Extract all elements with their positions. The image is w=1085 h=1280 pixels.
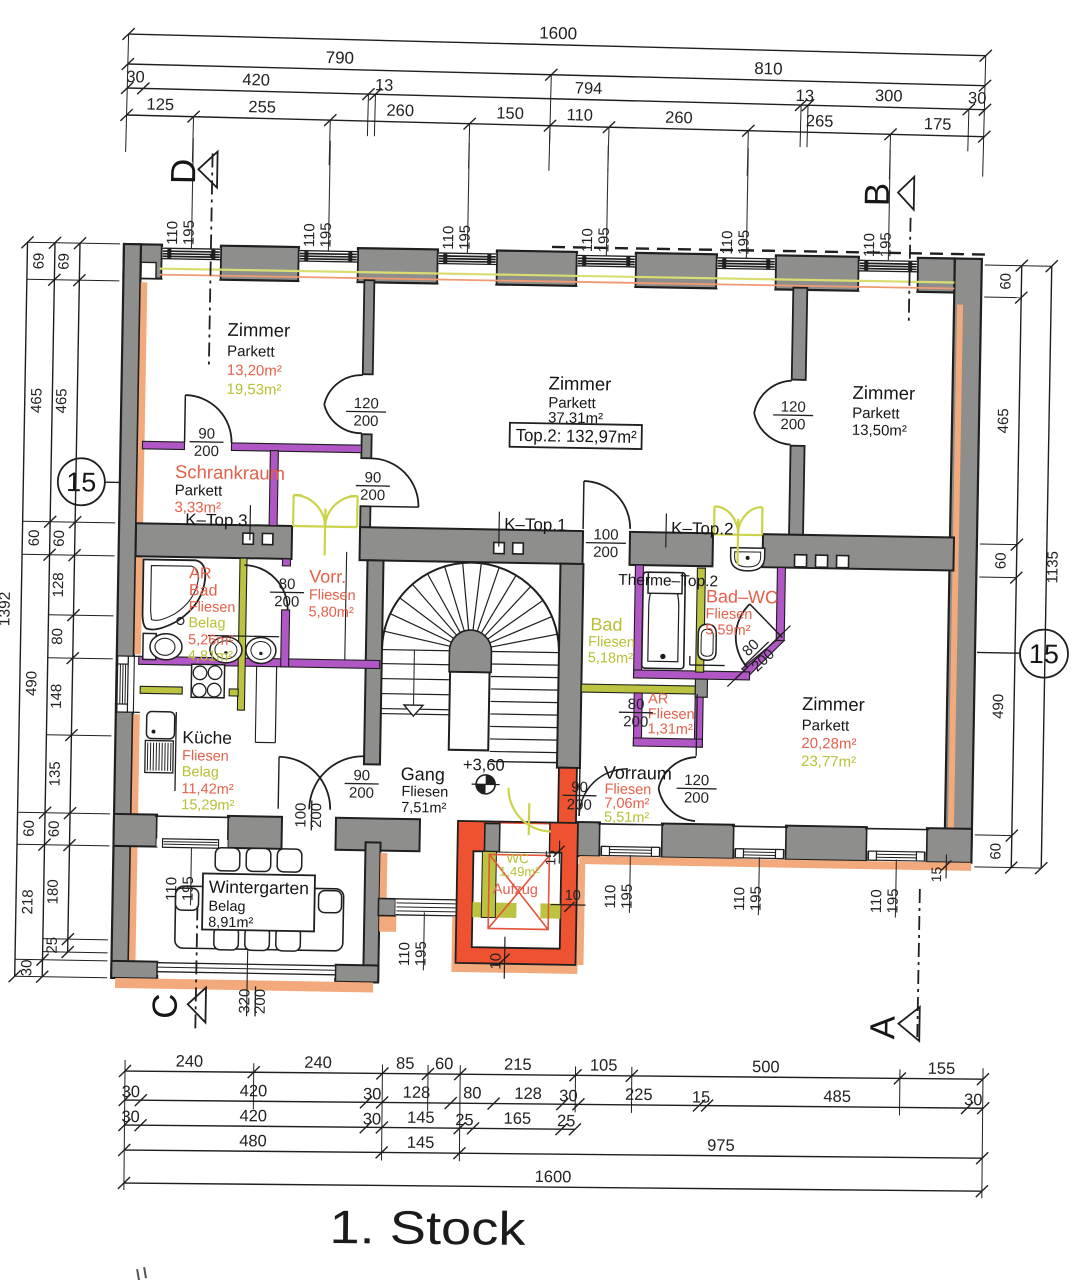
svg-text:200: 200 bbox=[353, 413, 378, 430]
svg-text:Fliesen: Fliesen bbox=[189, 599, 236, 616]
svg-text:128: 128 bbox=[50, 572, 67, 597]
svg-text:145: 145 bbox=[407, 1134, 435, 1152]
svg-text:Fliesen: Fliesen bbox=[309, 587, 356, 604]
svg-text:200: 200 bbox=[623, 713, 648, 730]
svg-text:Parkett: Parkett bbox=[175, 482, 224, 500]
svg-text:490: 490 bbox=[990, 694, 1007, 719]
svg-text:135: 135 bbox=[47, 761, 64, 786]
svg-text:195: 195 bbox=[180, 876, 197, 901]
svg-text:69: 69 bbox=[56, 253, 73, 270]
svg-text:1600: 1600 bbox=[539, 23, 577, 43]
svg-text:K–Top.3: K–Top.3 bbox=[185, 510, 248, 530]
svg-text:15,29m²: 15,29m² bbox=[181, 797, 235, 814]
svg-text:110: 110 bbox=[440, 226, 457, 250]
svg-text:13: 13 bbox=[375, 76, 394, 94]
svg-text:Zimmer: Zimmer bbox=[852, 382, 915, 404]
svg-text:15: 15 bbox=[928, 866, 944, 882]
svg-text:Zimmer: Zimmer bbox=[802, 693, 865, 715]
svg-text:Therme–Top.2: Therme–Top.2 bbox=[618, 572, 718, 591]
svg-text:128: 128 bbox=[403, 1084, 431, 1102]
svg-text:90: 90 bbox=[364, 469, 381, 486]
svg-text:80: 80 bbox=[49, 628, 66, 645]
svg-text:30: 30 bbox=[126, 68, 145, 86]
svg-text:1392: 1392 bbox=[0, 592, 14, 627]
svg-text:30: 30 bbox=[964, 1091, 983, 1109]
svg-text:110: 110 bbox=[566, 106, 593, 125]
svg-text:120: 120 bbox=[354, 395, 379, 412]
svg-text:110: 110 bbox=[163, 877, 180, 901]
svg-text:15: 15 bbox=[66, 467, 97, 498]
svg-text:30: 30 bbox=[363, 1110, 382, 1128]
svg-text:Fliesen: Fliesen bbox=[182, 748, 229, 765]
svg-text:30: 30 bbox=[968, 89, 987, 107]
svg-text:15: 15 bbox=[542, 850, 558, 866]
svg-text:794: 794 bbox=[575, 79, 603, 98]
svg-text:200: 200 bbox=[349, 785, 374, 802]
svg-text:80: 80 bbox=[628, 696, 645, 713]
svg-text:K–Top.2: K–Top.2 bbox=[671, 519, 734, 539]
svg-text:Küche: Küche bbox=[182, 727, 232, 748]
svg-text:465: 465 bbox=[53, 388, 70, 413]
svg-text:195: 195 bbox=[456, 225, 473, 250]
svg-text:5,26m²: 5,26m² bbox=[188, 632, 234, 649]
svg-text:Schrankraum: Schrankraum bbox=[175, 461, 285, 484]
svg-text:25: 25 bbox=[455, 1111, 474, 1129]
svg-text:15: 15 bbox=[692, 1088, 711, 1106]
svg-text:13,20m²: 13,20m² bbox=[227, 362, 282, 380]
svg-text:485: 485 bbox=[823, 1088, 851, 1106]
svg-text:240: 240 bbox=[176, 1052, 204, 1070]
svg-text:7,51m²: 7,51m² bbox=[401, 800, 447, 817]
svg-text:15: 15 bbox=[1029, 639, 1060, 670]
svg-text:5,80m²: 5,80m² bbox=[308, 604, 354, 621]
svg-text:1135: 1135 bbox=[1044, 551, 1062, 584]
svg-text:110: 110 bbox=[868, 889, 885, 913]
svg-text:10: 10 bbox=[565, 888, 581, 904]
svg-text:215: 215 bbox=[504, 1056, 532, 1074]
svg-text:480: 480 bbox=[239, 1132, 267, 1150]
svg-text:145: 145 bbox=[407, 1109, 435, 1127]
svg-text:Vorraum: Vorraum bbox=[604, 762, 672, 783]
svg-text:C: C bbox=[145, 993, 184, 1019]
svg-text:20,28m²: 20,28m² bbox=[801, 735, 856, 753]
svg-text:Vorr.: Vorr. bbox=[309, 566, 346, 587]
svg-text:Parkett: Parkett bbox=[852, 405, 901, 423]
svg-text:Zimmer: Zimmer bbox=[548, 372, 611, 394]
svg-text:200: 200 bbox=[252, 989, 269, 1014]
svg-text:110: 110 bbox=[731, 887, 748, 911]
svg-text:60: 60 bbox=[997, 273, 1014, 290]
svg-text:Gang: Gang bbox=[401, 764, 445, 785]
svg-text:A: A bbox=[863, 1015, 902, 1040]
svg-text:465: 465 bbox=[28, 388, 45, 413]
svg-text:60: 60 bbox=[26, 529, 43, 546]
svg-text:148: 148 bbox=[48, 684, 65, 709]
svg-text:790: 790 bbox=[325, 48, 354, 68]
svg-text:1,31m²: 1,31m² bbox=[647, 721, 693, 738]
svg-text:80: 80 bbox=[463, 1084, 482, 1102]
svg-text:265: 265 bbox=[806, 112, 834, 131]
svg-text:200: 200 bbox=[684, 789, 709, 806]
svg-text:AR: AR bbox=[648, 691, 668, 707]
svg-text:5,51m²: 5,51m² bbox=[604, 809, 650, 826]
svg-text:30: 30 bbox=[18, 959, 35, 976]
svg-text:1,49m²: 1,49m² bbox=[499, 864, 540, 880]
svg-text:Fliesen: Fliesen bbox=[588, 634, 635, 651]
svg-text:D: D bbox=[164, 158, 203, 184]
svg-text:195: 195 bbox=[618, 884, 635, 909]
svg-text:200: 200 bbox=[360, 487, 385, 504]
svg-text:155: 155 bbox=[928, 1060, 956, 1078]
svg-text:255: 255 bbox=[248, 98, 276, 117]
svg-text:225: 225 bbox=[625, 1086, 653, 1104]
svg-text:420: 420 bbox=[242, 71, 270, 90]
svg-text:Belag: Belag bbox=[188, 615, 225, 632]
svg-text:8,91m²: 8,91m² bbox=[208, 915, 254, 932]
svg-text:30: 30 bbox=[363, 1085, 382, 1103]
svg-text:110: 110 bbox=[164, 221, 181, 245]
svg-text:200: 200 bbox=[593, 544, 618, 561]
svg-text:260: 260 bbox=[665, 109, 693, 128]
svg-text:175: 175 bbox=[924, 115, 952, 134]
svg-text:Belag: Belag bbox=[182, 764, 219, 781]
svg-text:150: 150 bbox=[496, 104, 524, 123]
svg-text:13: 13 bbox=[795, 87, 814, 105]
svg-text:195: 195 bbox=[884, 888, 901, 913]
svg-text:195: 195 bbox=[735, 230, 752, 255]
svg-text:Bad: Bad bbox=[590, 614, 622, 635]
svg-text:110: 110 bbox=[579, 228, 596, 252]
svg-text:195: 195 bbox=[412, 941, 429, 966]
svg-text:85: 85 bbox=[396, 1055, 415, 1073]
svg-text:195: 195 bbox=[180, 220, 197, 245]
svg-text:60: 60 bbox=[51, 530, 68, 547]
svg-text:465: 465 bbox=[995, 408, 1012, 433]
svg-text:90: 90 bbox=[198, 425, 215, 442]
svg-text:Aufzug: Aufzug bbox=[493, 882, 538, 899]
svg-text:1. Stock: 1. Stock bbox=[329, 1200, 526, 1255]
svg-text:Parkett: Parkett bbox=[227, 343, 276, 361]
svg-text:60: 60 bbox=[21, 820, 38, 837]
svg-text:100: 100 bbox=[593, 526, 618, 543]
svg-text:165: 165 bbox=[504, 1110, 532, 1128]
svg-text:105: 105 bbox=[590, 1056, 618, 1074]
svg-text:420: 420 bbox=[239, 1107, 267, 1125]
svg-text:23,77m²: 23,77m² bbox=[801, 753, 856, 771]
svg-text:975: 975 bbox=[707, 1137, 735, 1155]
svg-text:+3,60: +3,60 bbox=[463, 756, 505, 775]
svg-text:60: 60 bbox=[435, 1055, 454, 1073]
svg-text:200: 200 bbox=[308, 803, 325, 828]
svg-text:195: 195 bbox=[747, 886, 764, 911]
svg-text:300: 300 bbox=[875, 87, 903, 106]
svg-text:180: 180 bbox=[44, 879, 61, 904]
svg-text:200: 200 bbox=[194, 443, 219, 460]
svg-text:AR: AR bbox=[189, 565, 212, 582]
svg-text:120: 120 bbox=[684, 772, 709, 789]
svg-text:5,59m²: 5,59m² bbox=[705, 622, 751, 639]
svg-text:90: 90 bbox=[353, 767, 370, 784]
svg-text:25: 25 bbox=[557, 1112, 576, 1130]
svg-text:Top.2: 132,97m²: Top.2: 132,97m² bbox=[516, 425, 637, 447]
svg-text:Bad–WC: Bad–WC bbox=[706, 586, 778, 607]
svg-text:5,18m²: 5,18m² bbox=[588, 650, 634, 667]
svg-text:500: 500 bbox=[752, 1058, 780, 1076]
svg-text:Bad: Bad bbox=[189, 582, 218, 599]
svg-text:125: 125 bbox=[146, 95, 174, 114]
svg-text:240: 240 bbox=[304, 1054, 332, 1072]
svg-text:810: 810 bbox=[754, 59, 783, 79]
svg-text:60: 60 bbox=[987, 843, 1004, 860]
svg-text:218: 218 bbox=[19, 889, 36, 914]
svg-text:110: 110 bbox=[861, 233, 878, 257]
svg-text:19,53m²: 19,53m² bbox=[226, 381, 281, 399]
svg-text:60: 60 bbox=[46, 820, 63, 837]
svg-text:128: 128 bbox=[514, 1085, 542, 1103]
svg-text:110: 110 bbox=[396, 942, 413, 966]
svg-text:80: 80 bbox=[279, 576, 296, 593]
svg-text:Wintergarten: Wintergarten bbox=[209, 877, 310, 899]
svg-text:200: 200 bbox=[567, 796, 592, 813]
svg-text:195: 195 bbox=[595, 227, 612, 252]
svg-text:490: 490 bbox=[23, 671, 40, 696]
svg-text:200: 200 bbox=[274, 593, 299, 610]
svg-text:60: 60 bbox=[992, 552, 1009, 569]
svg-text:90: 90 bbox=[571, 779, 588, 796]
svg-text:13,50m²: 13,50m² bbox=[852, 422, 907, 440]
svg-text:120: 120 bbox=[781, 398, 806, 415]
svg-text:K–Top.1: K–Top.1 bbox=[504, 515, 567, 535]
svg-text:Zimmer: Zimmer bbox=[227, 319, 290, 341]
svg-text:Belag: Belag bbox=[208, 899, 245, 916]
svg-text:195: 195 bbox=[877, 232, 894, 257]
svg-text:110: 110 bbox=[719, 230, 736, 254]
svg-text:Fliesen: Fliesen bbox=[705, 606, 752, 623]
svg-text:200: 200 bbox=[780, 416, 805, 433]
svg-text:110: 110 bbox=[301, 223, 318, 247]
svg-text:195: 195 bbox=[317, 222, 334, 247]
svg-text:1600: 1600 bbox=[535, 1168, 572, 1186]
svg-text:B: B bbox=[858, 182, 897, 206]
svg-text:110: 110 bbox=[602, 885, 619, 909]
svg-text:260: 260 bbox=[386, 102, 414, 121]
svg-text:Parkett: Parkett bbox=[802, 717, 851, 735]
svg-text:4,81m²: 4,81m² bbox=[188, 648, 234, 665]
svg-text:Fliesen: Fliesen bbox=[401, 784, 448, 801]
svg-text:11,42m²: 11,42m² bbox=[181, 781, 234, 798]
svg-text:69: 69 bbox=[31, 253, 48, 270]
